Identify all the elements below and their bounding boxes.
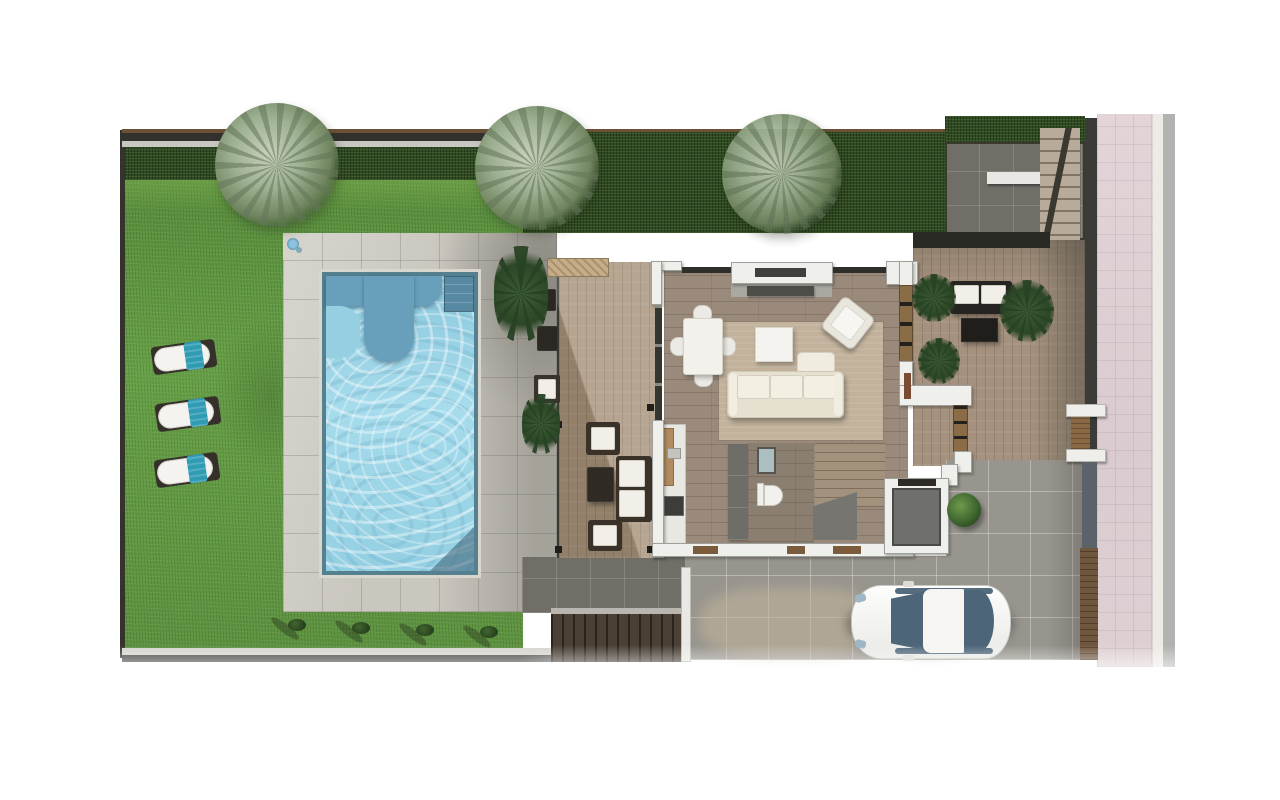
pedestrian-gate <box>1071 417 1090 449</box>
window-right-lower <box>954 406 967 451</box>
glazing-top-right <box>833 267 886 273</box>
shower <box>757 447 776 474</box>
poolside-palm-tall <box>494 246 548 342</box>
poolside-palm-small <box>522 394 560 454</box>
terrace-palm <box>1000 280 1054 342</box>
bush <box>288 619 306 631</box>
sofa <box>727 371 844 418</box>
wall-right-stub <box>899 261 913 287</box>
car-mirror <box>903 581 914 587</box>
towel <box>183 340 205 370</box>
lower-shaded-paving <box>522 557 685 613</box>
sliding-glass-doors <box>655 305 662 422</box>
picture-window <box>731 262 833 284</box>
pool-bench-notch <box>326 306 360 358</box>
palm-tree-over-hedge <box>722 114 842 234</box>
deck-armchair <box>586 422 620 455</box>
bush <box>352 622 370 634</box>
pool-corner-step <box>444 276 474 312</box>
dining-chair <box>721 337 736 356</box>
side-gate-gray <box>1082 462 1097 548</box>
towel <box>186 453 208 483</box>
bottom-fade <box>0 645 1280 693</box>
deck-post <box>555 546 562 553</box>
terrace-palm <box>912 274 956 322</box>
kitchen-sink <box>667 448 681 459</box>
olive-tree-left <box>215 103 339 227</box>
court-trim <box>987 172 1040 184</box>
deck-armchair <box>588 520 622 551</box>
window-right-upper <box>900 286 912 362</box>
gate-pillar <box>1066 404 1106 417</box>
door-threshold <box>693 546 718 554</box>
swimming-pool <box>322 272 478 575</box>
car-windshield <box>891 590 927 652</box>
pool-bench-stem <box>364 276 414 362</box>
tv-console <box>747 286 814 296</box>
glazing-top-left <box>682 267 731 273</box>
floor-plan-scene <box>0 0 1280 800</box>
left-boundary-wall <box>120 130 125 658</box>
terrace-palm <box>918 338 960 384</box>
driveway-gate <box>1080 548 1098 660</box>
wall-niche-art <box>904 373 911 399</box>
deck-coffee-table <box>587 467 614 502</box>
wall-right-jog-h <box>899 385 972 406</box>
gate-pillar <box>1066 449 1106 462</box>
terrace-coffee-table <box>961 318 998 342</box>
bush <box>480 626 498 638</box>
car-roof <box>923 589 969 653</box>
street-strip <box>1163 114 1175 667</box>
round-bush <box>947 493 981 527</box>
dining-table <box>683 318 723 375</box>
wall-bottom <box>652 543 914 557</box>
bush <box>416 624 434 636</box>
storage-room-floor <box>892 488 941 546</box>
towel <box>187 397 209 427</box>
toilet <box>757 483 764 506</box>
kitchen-tall-units <box>728 444 748 540</box>
wall-left-lower <box>652 420 664 558</box>
door-threshold <box>833 546 861 554</box>
deck-sofa <box>616 456 652 522</box>
olive-tree-center <box>475 106 599 230</box>
wall-top-left-corner-v <box>651 261 662 305</box>
door-threshold <box>787 546 805 554</box>
coffee-table <box>755 327 793 362</box>
kitchen-oven <box>664 496 684 516</box>
curb <box>1153 114 1163 667</box>
storage-door-lintel <box>898 479 936 486</box>
outdoor-shower-icon <box>287 238 299 250</box>
deck-post <box>647 404 654 411</box>
pink-sidewalk <box>1097 114 1153 667</box>
terrace-planter-band <box>913 232 1050 248</box>
stone-bbq-bench <box>548 259 608 276</box>
